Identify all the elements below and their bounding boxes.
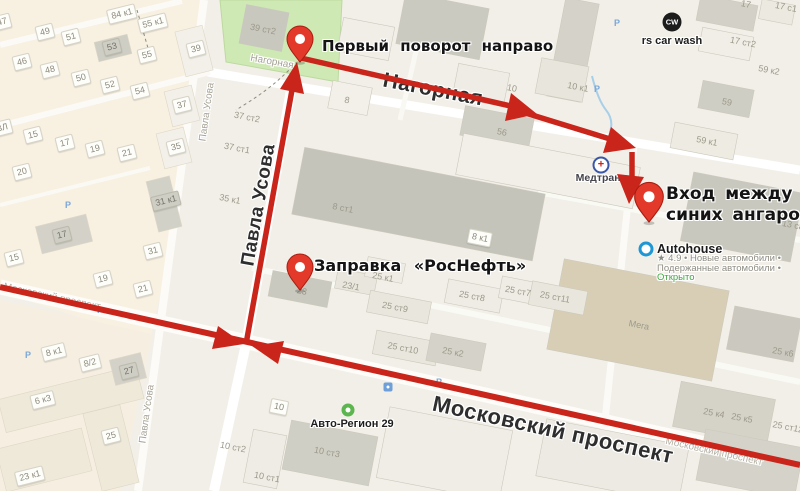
parking-icon: Р [734, 447, 740, 457]
building-label: 17 с1 [774, 0, 798, 14]
building-plate: 19 [92, 270, 113, 289]
building-label: 13 с8 [781, 218, 800, 232]
bus-stop-icon [384, 383, 393, 392]
building-plate: 21 [116, 144, 137, 163]
building-label: 17 ст2 [729, 35, 757, 50]
map-canvas[interactable]: Московский проспект Московский проспект … [0, 0, 800, 491]
street-label-nagornaya-small: Нагорная [249, 53, 294, 71]
building-label: 37 ст1 [223, 141, 251, 156]
building-plate: 31 к1 [150, 190, 182, 212]
building-plate: 51 [60, 28, 81, 47]
medtrans-cross: + [598, 160, 604, 171]
building-plate: 10 [269, 398, 290, 416]
building-plate: 55 [136, 46, 157, 65]
building-plate: 19 [84, 140, 105, 159]
car-wash-label[interactable]: rs car wash [642, 35, 703, 47]
building-plate: 17 [54, 134, 75, 153]
building-plate: 39 [185, 40, 206, 59]
building-label: Мега [628, 318, 650, 332]
medtrans-label[interactable]: Медтранс [576, 172, 627, 184]
parking-icon: Р [594, 84, 600, 94]
building-label: 25 ст7 [504, 284, 532, 299]
building-plate: 55 к1 [137, 12, 169, 34]
building-label: 59 к1 [696, 134, 719, 148]
car-wash-badge: CW [666, 18, 679, 27]
building-label: 25 к2 [442, 345, 465, 359]
building-plate: 84 к1 [106, 3, 138, 25]
building-label: 25 к6 [772, 345, 795, 359]
parking-icon: Р [65, 200, 71, 210]
auto-region-icon[interactable] [342, 404, 355, 417]
building-label: 17 [740, 0, 752, 10]
building-plate: ВЛ [0, 118, 13, 137]
building-plate: 15 [22, 126, 43, 145]
street-label-pavla-usova-small-top: Павла Усова [197, 82, 216, 142]
car-wash-icon[interactable]: CW [663, 13, 682, 32]
medical-cross-icon[interactable]: + [593, 157, 610, 174]
parking-icon: Р [614, 18, 620, 28]
building-label: 10 ст1 [253, 470, 281, 485]
building-plate: 53 [101, 38, 122, 57]
building-label: 35 к1 [219, 192, 242, 206]
building-plate: 8 к1 [40, 342, 67, 362]
parking-icon: Р [25, 350, 31, 360]
building-label: 25 ст10 [387, 340, 419, 356]
building-label: 8 ст1 [332, 201, 355, 215]
building-plate: 54 [129, 82, 150, 101]
building-label: 25 к1 [372, 270, 395, 284]
building-label: 37 ст2 [233, 110, 261, 125]
autohouse-open-status: Открыто [657, 272, 695, 283]
building-label: 25 ст9 [381, 300, 409, 315]
building-label: 10 к1 [567, 80, 590, 94]
building-label: 56 [496, 126, 508, 138]
building-label: 25 к5 [731, 411, 754, 425]
building-plate: 15 [3, 249, 24, 268]
map-labels-layer: Московский проспект Московский проспект … [0, 0, 800, 491]
building-plate: 25 [100, 427, 121, 446]
building-label: 23/1 [341, 279, 360, 292]
auto-region-label[interactable]: Авто-Регион 29 [310, 418, 393, 430]
building-plate: 27 [118, 362, 139, 381]
building-plate: 8/2 [78, 353, 102, 373]
building-plate: 6 к3 [29, 390, 56, 410]
building-label: 10 ст3 [313, 445, 341, 460]
building-plate: 50 [70, 69, 91, 88]
building-plate: 31 [142, 242, 163, 261]
building-plate: 20 [11, 163, 32, 182]
building-plate: 21 [132, 280, 153, 299]
building-label: 25 ст11 [539, 289, 571, 305]
building-label: 59 [721, 96, 733, 108]
building-plate: 23 к1 [14, 465, 46, 487]
street-label-moskovsky-prospekt: Московский проспект [430, 391, 676, 470]
building-plate: 35 [165, 138, 186, 157]
building-plate: 8 к1 [467, 228, 494, 247]
street-label-nagornaya: Нагорная [381, 69, 485, 112]
building-plate: 46 [11, 53, 32, 72]
building-label: 10 [506, 82, 518, 94]
building-label: 10 ст2 [219, 440, 247, 455]
building-label: 39 ст2 [249, 22, 277, 37]
building-plate: 52 [99, 76, 120, 95]
building-label: 25 ст8 [458, 289, 486, 304]
building-plate: 48 [39, 61, 60, 80]
building-label: 8 [344, 95, 351, 106]
parking-icon: Р [97, 305, 103, 315]
street-label-pavla-usova: Павла Усова [237, 142, 280, 268]
building-label: 59 к2 [758, 63, 781, 77]
street-label-pavla-usova-small-bottom: Павла Усова [137, 384, 156, 444]
building-plate: 47 [0, 13, 13, 32]
building-label: 25 к4 [703, 406, 726, 420]
building-plate: 17 [51, 226, 72, 245]
parking-icon: Р [436, 377, 442, 387]
building-plate: 37 [171, 96, 192, 115]
autohouse-icon[interactable] [639, 242, 654, 257]
parking-icon: Р [692, 437, 698, 447]
street-label-moskovsky-small-right: Московский проспект [664, 436, 763, 468]
building-label: 25 ст12 [772, 419, 800, 435]
street-label-moskovsky-small-left: Московский проспект [2, 281, 101, 312]
building-plate: 49 [34, 23, 55, 42]
